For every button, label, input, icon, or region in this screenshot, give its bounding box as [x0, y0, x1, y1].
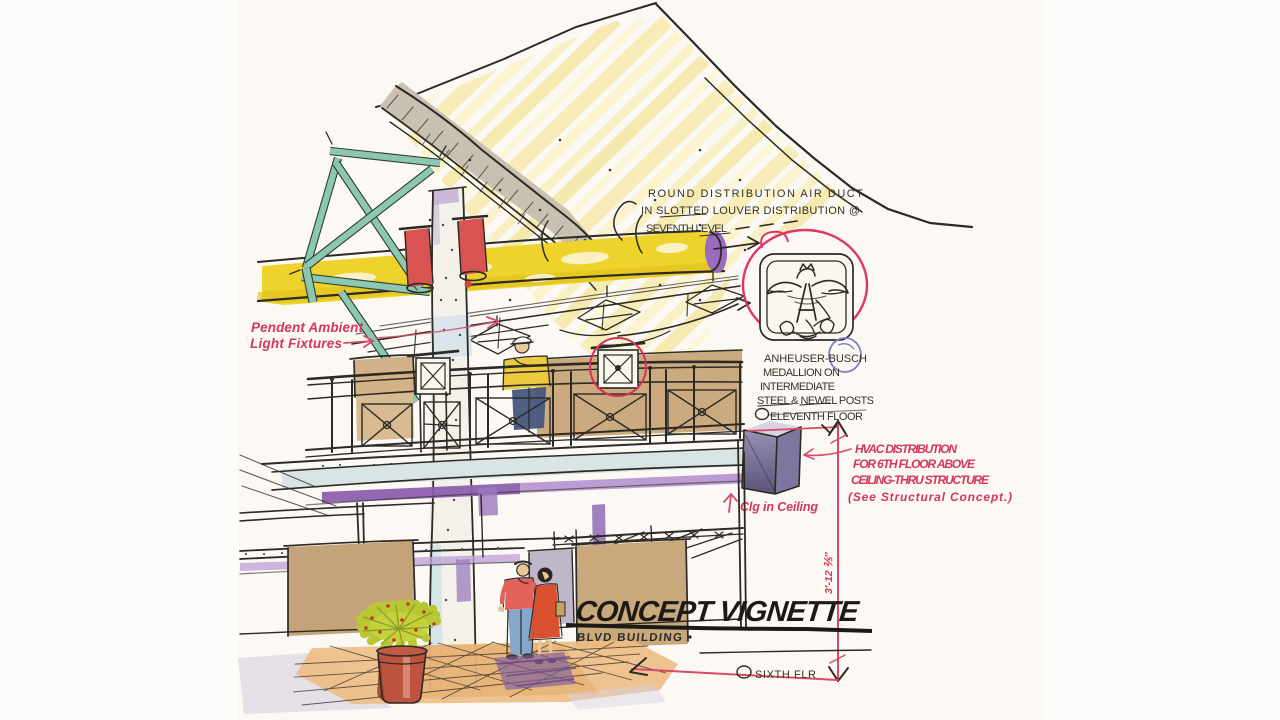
svg-text:SIXTH FLR: SIXTH FLR: [755, 669, 817, 681]
svg-text:CONCEPT VIGNETTE: CONCEPT VIGNETTE: [574, 596, 862, 628]
svg-text:FOR 6TH FLOOR ABOVE: FOR 6TH FLOOR ABOVE: [853, 457, 976, 471]
svg-text:MEDALLION ON: MEDALLION ON: [763, 367, 841, 379]
svg-text:HVAC DISTRIBUTION: HVAC DISTRIBUTION: [855, 442, 957, 456]
svg-text:Clg in Ceiling: Clg in Ceiling: [740, 500, 818, 514]
svg-text:ROUND DISTRIBUTION AIR DUCT: ROUND DISTRIBUTION AIR DUCT: [648, 188, 864, 200]
svg-text:IN SLOTTED LOUVER DISTRIBUTION: IN SLOTTED LOUVER DISTRIBUTION @: [641, 205, 861, 217]
svg-text:BLVD BUILDING: BLVD BUILDING: [576, 632, 683, 644]
svg-text:3′-12 ⅖″: 3′-12 ⅖″: [823, 551, 835, 594]
svg-text:CEILING-THRU STRUCTURE: CEILING-THRU STRUCTURE: [851, 473, 990, 487]
svg-text:(See Structural Concept.): (See Structural Concept.): [848, 490, 1012, 504]
svg-text:Light Fixtures: Light Fixtures: [250, 336, 342, 351]
svg-text:INTERMEDIATE: INTERMEDIATE: [760, 381, 836, 393]
svg-text:ELEVENTH FLOOR: ELEVENTH FLOOR: [770, 411, 864, 423]
svg-text:SEVENTH LEVEL: SEVENTH LEVEL: [646, 223, 728, 235]
svg-text:Pendent Ambient: Pendent Ambient: [251, 320, 364, 335]
svg-text:ANHEUSER-BUSCH: ANHEUSER-BUSCH: [764, 353, 868, 365]
